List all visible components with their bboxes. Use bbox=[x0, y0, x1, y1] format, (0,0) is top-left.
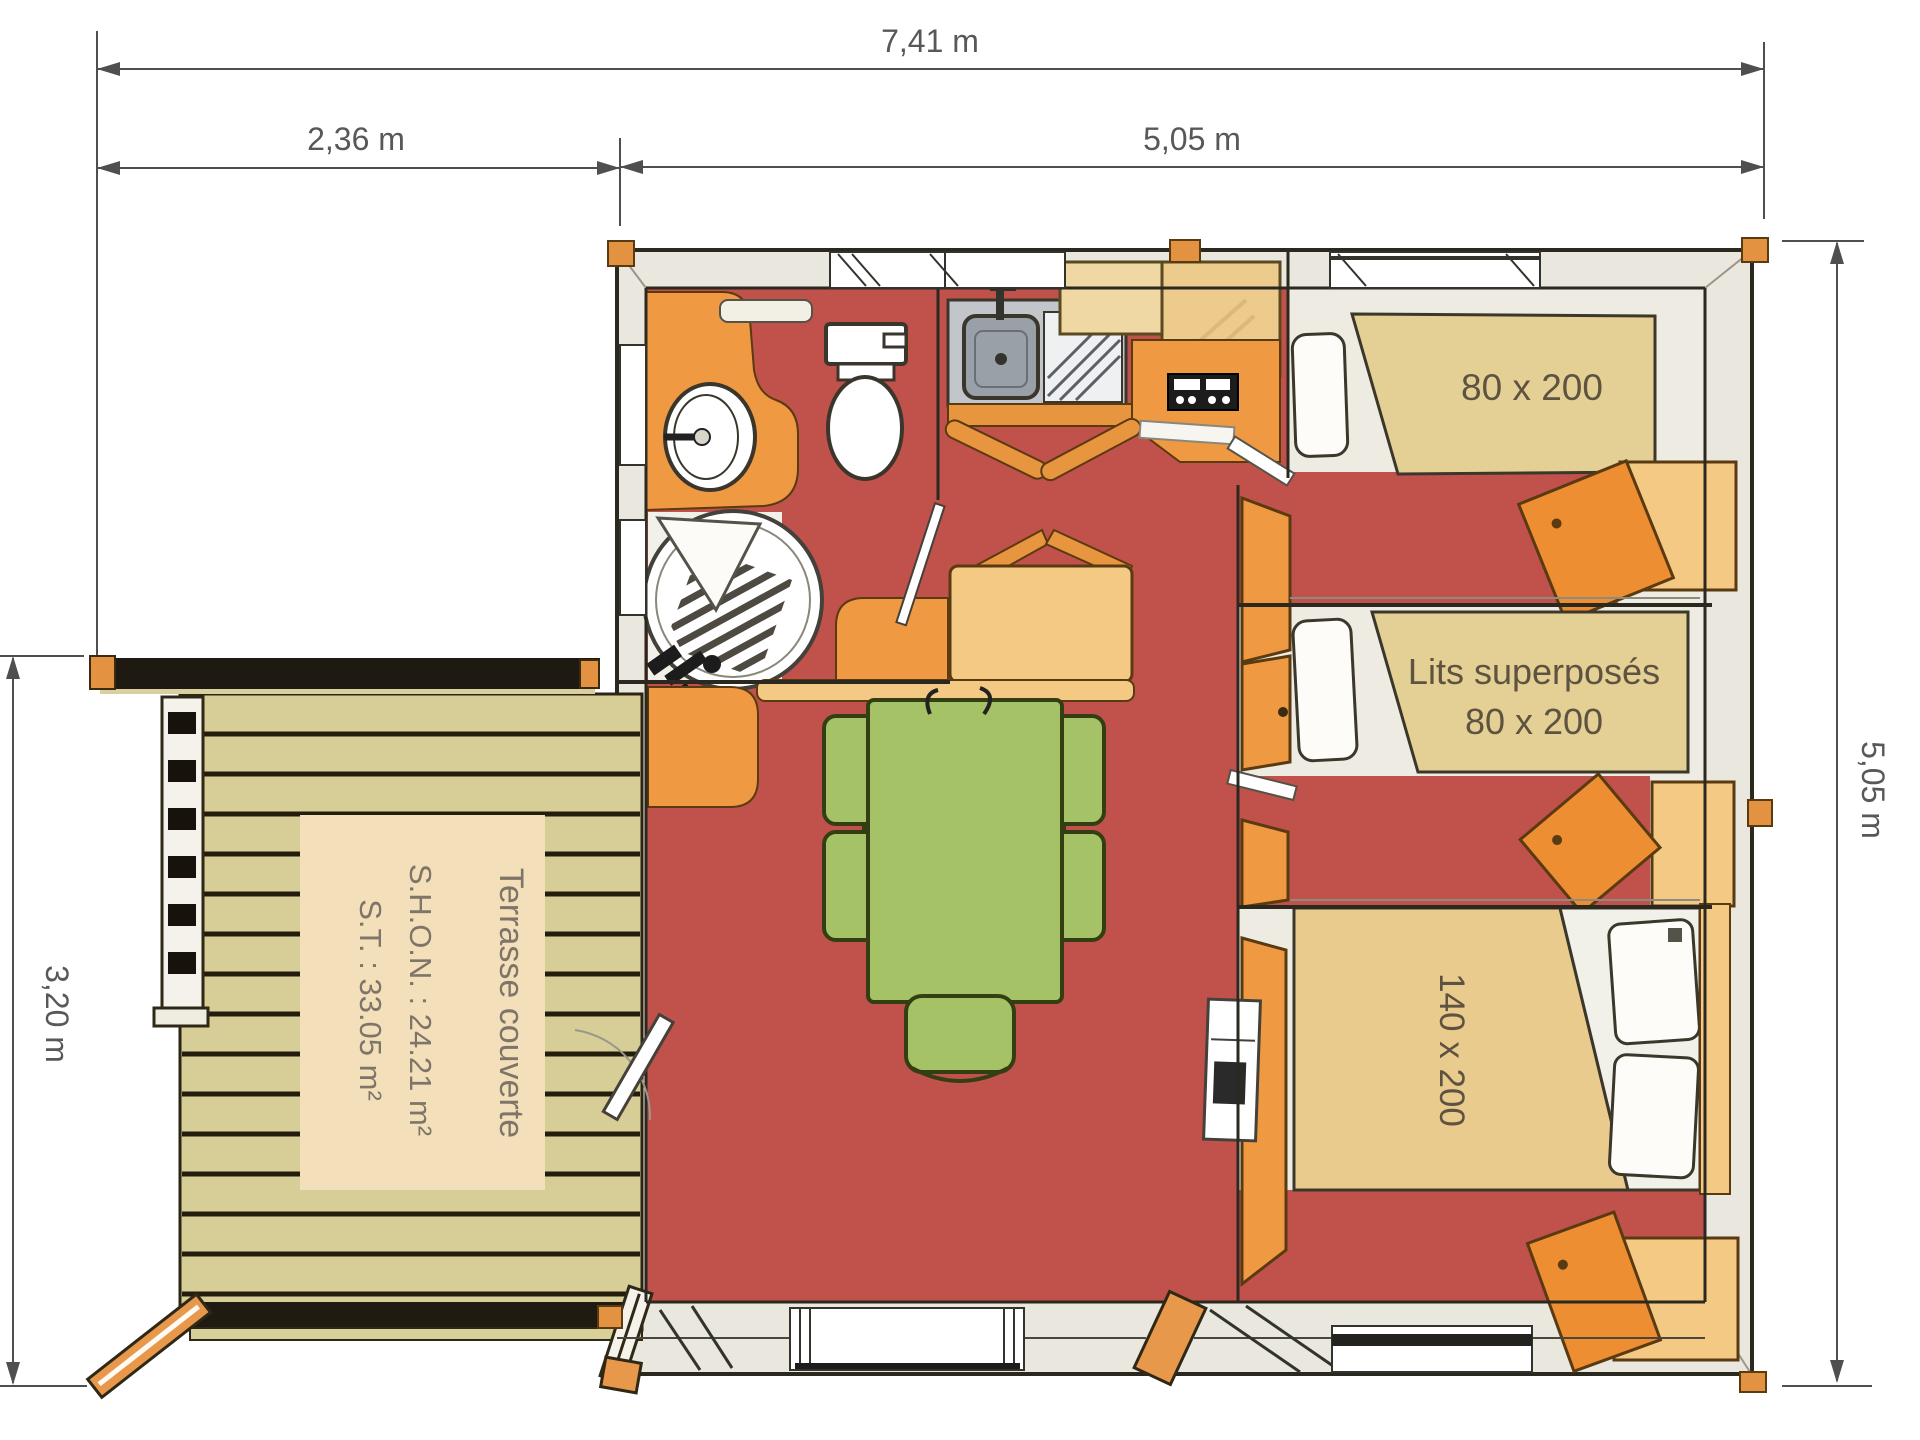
svg-text:S.T. : 33.05 m²: S.T. : 33.05 m² bbox=[353, 899, 388, 1101]
svg-text:S.H.O.N. : 24.21 m²: S.H.O.N. : 24.21 m² bbox=[403, 864, 438, 1136]
svg-text:80 x 200: 80 x 200 bbox=[1465, 701, 1603, 742]
svg-text:Terrasse couverte: Terrasse couverte bbox=[492, 868, 530, 1138]
svg-text:80 x 200: 80 x 200 bbox=[1461, 367, 1603, 408]
svg-text:5,05 m: 5,05 m bbox=[1855, 741, 1891, 839]
svg-text:5,05 m: 5,05 m bbox=[1143, 121, 1241, 157]
svg-text:Lits superposés: Lits superposés bbox=[1408, 651, 1660, 692]
svg-text:140 x 200: 140 x 200 bbox=[1432, 973, 1471, 1127]
svg-text:2,36 m: 2,36 m bbox=[307, 121, 405, 157]
svg-text:7,41 m: 7,41 m bbox=[881, 23, 979, 59]
svg-text:3,20 m: 3,20 m bbox=[39, 965, 75, 1063]
